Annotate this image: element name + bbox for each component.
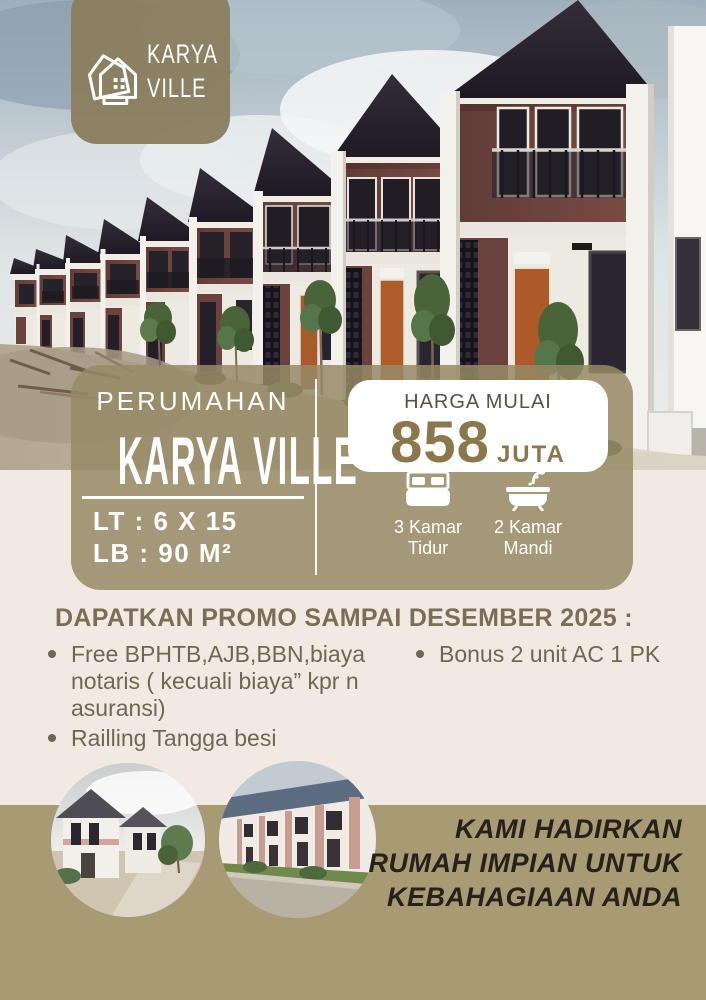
gallery-photo-2 — [219, 761, 376, 918]
tagline-line3: KEBAHAGIAAN ANDA — [369, 880, 682, 914]
promo-item: Railling Tangga besi — [44, 725, 392, 752]
promo-list-left: Free BPHTB,AJB,BBN,biaya notaris ( kecua… — [44, 641, 392, 755]
project-name-block: PERUMAHAN KARYA VILLE LT : 6 X 15 LB : 9… — [71, 365, 315, 590]
bath-icon — [473, 467, 583, 511]
feature-bedrooms: 3 Kamar Tidur — [373, 467, 483, 558]
brand-logo-line1: KARYA — [147, 42, 218, 69]
property-poster: KARYA VILLE PERUMAHAN KARYA VILLE LT : 6… — [0, 0, 706, 1000]
land-size: LT : 6 X 15 — [93, 506, 238, 537]
bullet-dot — [48, 650, 56, 658]
project-title: KARYA VILLE — [71, 423, 315, 478]
gallery-photo-1 — [51, 763, 205, 917]
price-block: HARGA MULAI 858 JUTA 3 Kamar — [317, 365, 633, 590]
bullet-dot — [48, 734, 56, 742]
house-logo-icon — [83, 39, 139, 105]
feature-bathrooms-label: 2 Kamar Mandi — [473, 517, 583, 558]
info-panel: PERUMAHAN KARYA VILLE LT : 6 X 15 LB : 9… — [71, 365, 633, 590]
price-unit: JUTA — [497, 443, 566, 467]
promo-item: Free BPHTB,AJB,BBN,biaya notaris ( kecua… — [44, 641, 392, 722]
tagline-line1: KAMI HADIRKAN — [369, 812, 682, 846]
brand-logo: KARYA VILLE — [71, 0, 230, 144]
title-underline — [82, 496, 304, 499]
tagline-line2: RUMAH IMPIAN UNTUK — [369, 846, 682, 880]
tagline: KAMI HADIRKAN RUMAH IMPIAN UNTUK KEBAHAG… — [369, 812, 682, 914]
brand-logo-line2: VILLE — [147, 76, 218, 103]
feature-bathrooms: 2 Kamar Mandi — [473, 467, 583, 558]
promo-heading: DAPATKAN PROMO SAMPAI DESEMBER 2025 : — [55, 604, 633, 633]
brand-logo-text: KARYA VILLE — [147, 31, 218, 113]
price-amount: 858 — [390, 414, 490, 472]
feature-bedrooms-label: 3 Kamar Tidur — [373, 517, 483, 558]
bullet-dot — [416, 650, 424, 658]
project-subtitle: PERUMAHAN — [71, 386, 315, 417]
promo-item: Bonus 2 unit AC 1 PK — [412, 641, 702, 668]
price-card: HARGA MULAI 858 JUTA — [348, 380, 608, 472]
bed-icon — [373, 467, 483, 511]
building-size: LB : 90 M² — [93, 538, 232, 569]
promo-list-right: Bonus 2 unit AC 1 PK — [412, 641, 702, 671]
